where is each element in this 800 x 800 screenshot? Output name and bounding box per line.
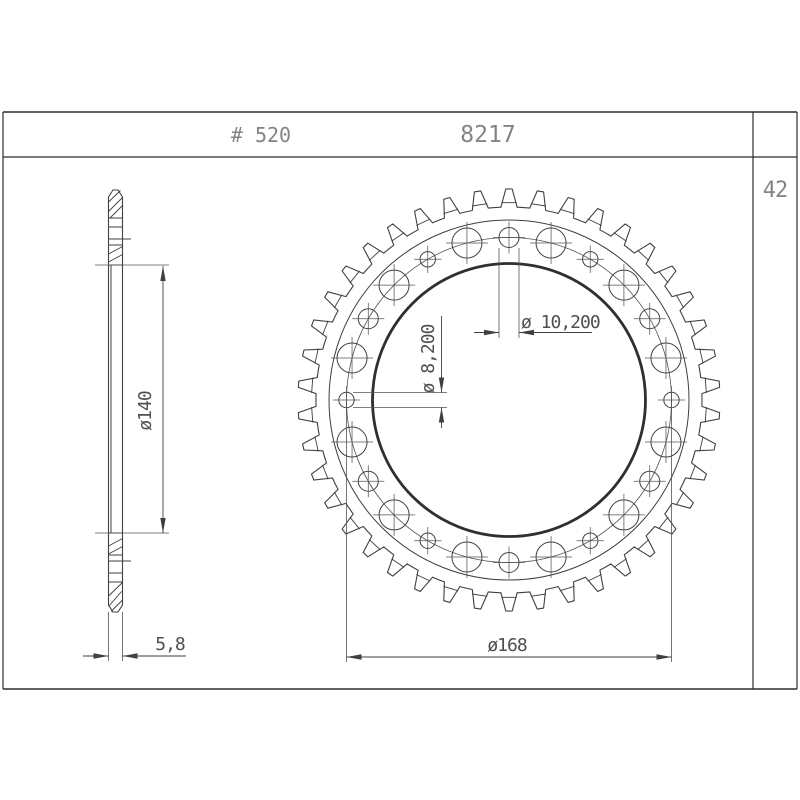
- tooth-root-chord: [676, 295, 684, 308]
- bolt-hole: [634, 465, 666, 497]
- tooth-root-chord: [638, 250, 649, 260]
- tooth-root-chord: [391, 233, 404, 242]
- lightening-hole: [446, 536, 488, 578]
- front-view-sprocket: [298, 189, 719, 611]
- tooth-root-chord: [659, 517, 669, 529]
- tooth-root-chord: [531, 594, 546, 596]
- dim-bore-diameter-label: ø140: [135, 391, 156, 431]
- dimension-arrowhead: [657, 654, 672, 659]
- tooth-root-chord: [443, 209, 458, 214]
- tooth-root-chord: [443, 586, 458, 591]
- hatch-line: [109, 191, 121, 203]
- hatch-line: [110, 206, 123, 219]
- dimension-arrowhead: [160, 518, 165, 533]
- tooth-root-chord: [690, 465, 696, 479]
- bolt-hole: [493, 547, 525, 579]
- lightening-hole: [603, 264, 645, 306]
- teeth-count-label: 42: [763, 178, 788, 203]
- tooth-root-chord: [705, 407, 706, 422]
- tooth-root-chord: [334, 295, 342, 308]
- part-number-label: 8217: [460, 122, 515, 148]
- hatch-line: [109, 247, 123, 255]
- rivet-hole: [577, 246, 604, 273]
- bolt-hole: [634, 303, 666, 335]
- dim-bolt-circle: [347, 400, 672, 662]
- tooth-root-chord: [560, 586, 575, 591]
- hatch-line: [109, 547, 123, 555]
- dimension-annotations: [83, 248, 672, 662]
- tooth-root-chord: [350, 517, 360, 529]
- tooth-root-chord: [322, 465, 328, 479]
- dimension-arrowhead: [484, 330, 499, 335]
- tooth-root-chord: [416, 574, 430, 581]
- dimension-arrowhead: [94, 653, 109, 658]
- tooth-root-chord: [705, 378, 706, 393]
- tooth-root-chord: [472, 594, 487, 596]
- hole-pattern: [331, 222, 687, 579]
- tooth-root-chord: [560, 209, 575, 214]
- lightening-hole: [530, 222, 572, 264]
- lightening-hole: [373, 264, 415, 306]
- lightening-hole: [603, 494, 645, 536]
- bolt-hole: [352, 465, 384, 497]
- lightening-hole: [373, 494, 415, 536]
- rim-circle: [329, 220, 689, 580]
- tooth-root-chord: [700, 436, 703, 451]
- dimension-arrowhead: [123, 653, 138, 658]
- rivet-hole: [577, 527, 604, 554]
- dim-small-hole-diameter-label: ø 8,200: [418, 324, 439, 393]
- tooth-root-chord: [531, 204, 546, 206]
- dim-thickness-label: 5,8: [155, 634, 185, 655]
- lightening-hole: [331, 421, 373, 463]
- dim-bolt-circle-diameter-label: ø168: [487, 635, 527, 656]
- dimension-arrowhead: [160, 266, 165, 281]
- center-bore-circle: [373, 264, 646, 537]
- tooth-root-chord: [614, 559, 627, 568]
- tooth-root-chord: [369, 539, 380, 549]
- tooth-root-chord: [690, 321, 696, 335]
- tooth-root-chord: [588, 574, 602, 581]
- tooth-root-chord: [700, 349, 703, 364]
- sprocket-technical-drawing-page: # 520 8217 42 ø140 5,8 ø 10,200 ø 8,200 …: [0, 0, 800, 800]
- hatch-line: [109, 255, 123, 263]
- tooth-root-chord: [334, 492, 342, 505]
- tooth-root-chord: [659, 271, 669, 283]
- dim-bore: [95, 265, 169, 533]
- tooth-root-chord: [588, 219, 602, 226]
- lightening-hole: [446, 222, 488, 264]
- tooth-root-chord: [315, 436, 318, 451]
- tooth-root-chord: [676, 492, 684, 505]
- tooth-root-chord: [614, 233, 627, 242]
- technical-drawing-canvas: # 520 8217 42 ø140 5,8 ø 10,200 ø 8,200 …: [0, 0, 800, 800]
- tooth-root-chord: [638, 539, 649, 549]
- dimension-arrowhead: [347, 654, 362, 659]
- tooth-root-chord: [369, 250, 380, 260]
- lightening-hole: [530, 536, 572, 578]
- bolt-hole: [352, 303, 384, 335]
- hatch-line: [109, 583, 123, 597]
- chain-size-label: # 520: [231, 123, 291, 147]
- rivet-hole: [414, 527, 441, 554]
- lightening-hole: [645, 421, 687, 463]
- bolt-hole: [493, 222, 525, 254]
- hatch-line: [109, 539, 123, 547]
- tooth-root-chord: [391, 559, 404, 568]
- bolt-circle: [347, 238, 672, 563]
- lightening-hole: [645, 337, 687, 379]
- rivet-hole: [414, 246, 441, 273]
- tooth-root-chord: [312, 407, 313, 422]
- lightening-hole: [331, 337, 373, 379]
- side-view-sprocket-section: [109, 190, 132, 661]
- tooth-root-chord: [472, 204, 487, 206]
- tooth-root-chord: [416, 219, 430, 226]
- tooth-root-chord: [322, 321, 328, 335]
- generated-drawing: [3, 112, 797, 689]
- dimension-arrowhead: [439, 408, 444, 423]
- tooth-root-chord: [315, 349, 318, 364]
- dim-bolt-hole-diameter-label: ø 10,200: [521, 312, 600, 333]
- dimension-arrowhead: [439, 378, 444, 393]
- tooth-root-chord: [312, 378, 313, 393]
- tooth-root-chord: [350, 271, 360, 283]
